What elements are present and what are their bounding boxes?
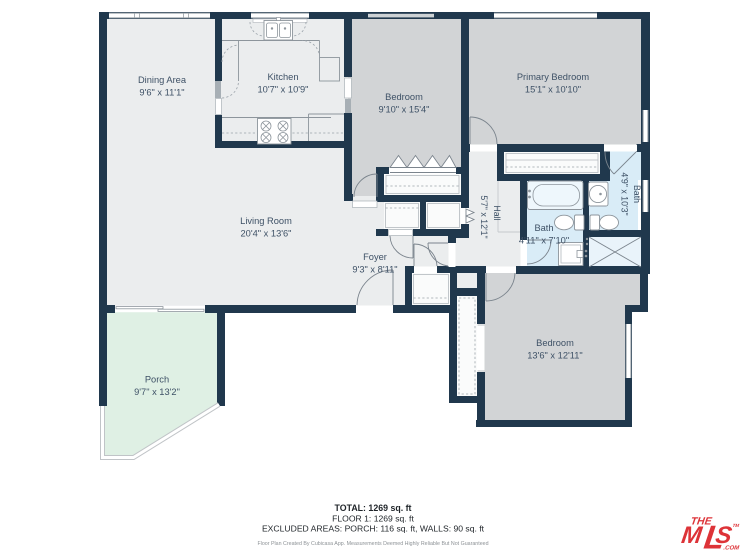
svg-text:Floor Plan Created By Cubicasa: Floor Plan Created By Cubicasa App. Meas… <box>257 541 488 547</box>
svg-text:Kitchen: Kitchen <box>267 72 298 82</box>
svg-text:Porch: Porch <box>145 375 169 385</box>
svg-text:EXCLUDED AREAS: PORCH: 116 sq.: EXCLUDED AREAS: PORCH: 116 sq. ft, WALLS… <box>262 524 485 534</box>
svg-text:Bath: Bath <box>534 223 553 233</box>
svg-text:FLOOR 1: 1269 sq. ft: FLOOR 1: 1269 sq. ft <box>332 514 414 524</box>
svg-text:20'4" x 13'6": 20'4" x 13'6" <box>241 229 292 239</box>
svg-text:Bath: Bath <box>632 185 642 203</box>
svg-text:9'10" x 15'4": 9'10" x 15'4" <box>379 105 430 115</box>
svg-text:9'6" x 11'1": 9'6" x 11'1" <box>139 88 184 98</box>
svg-text:Hall: Hall <box>492 205 502 220</box>
svg-text:9'3" x 8'11": 9'3" x 8'11" <box>352 265 397 275</box>
svg-text:Dining Area: Dining Area <box>138 75 187 85</box>
svg-text:TM: TM <box>732 523 739 528</box>
svg-text:10'7" x 10'9": 10'7" x 10'9" <box>258 85 309 95</box>
svg-text:Foyer: Foyer <box>363 252 387 262</box>
svg-text:9'7" x 13'2": 9'7" x 13'2" <box>134 387 180 397</box>
svg-text:.COM: .COM <box>723 546 740 552</box>
svg-text:TOTAL: 1269 sq. ft: TOTAL: 1269 sq. ft <box>335 503 412 513</box>
svg-text:Primary Bedroom: Primary Bedroom <box>517 72 590 82</box>
svg-text:Bedroom: Bedroom <box>536 338 574 348</box>
svg-text:13'6" x 12'11": 13'6" x 12'11" <box>527 351 582 361</box>
svg-text:4'11" x 7'10": 4'11" x 7'10" <box>519 236 569 246</box>
svg-text:Living Room: Living Room <box>240 216 292 226</box>
svg-text:5'7" x 12'1": 5'7" x 12'1" <box>479 195 489 238</box>
svg-text:Bedroom: Bedroom <box>385 92 423 102</box>
svg-text:15'1" x 10'10": 15'1" x 10'10" <box>525 85 581 95</box>
svg-text:4'9" x 10'3": 4'9" x 10'3" <box>620 172 630 215</box>
